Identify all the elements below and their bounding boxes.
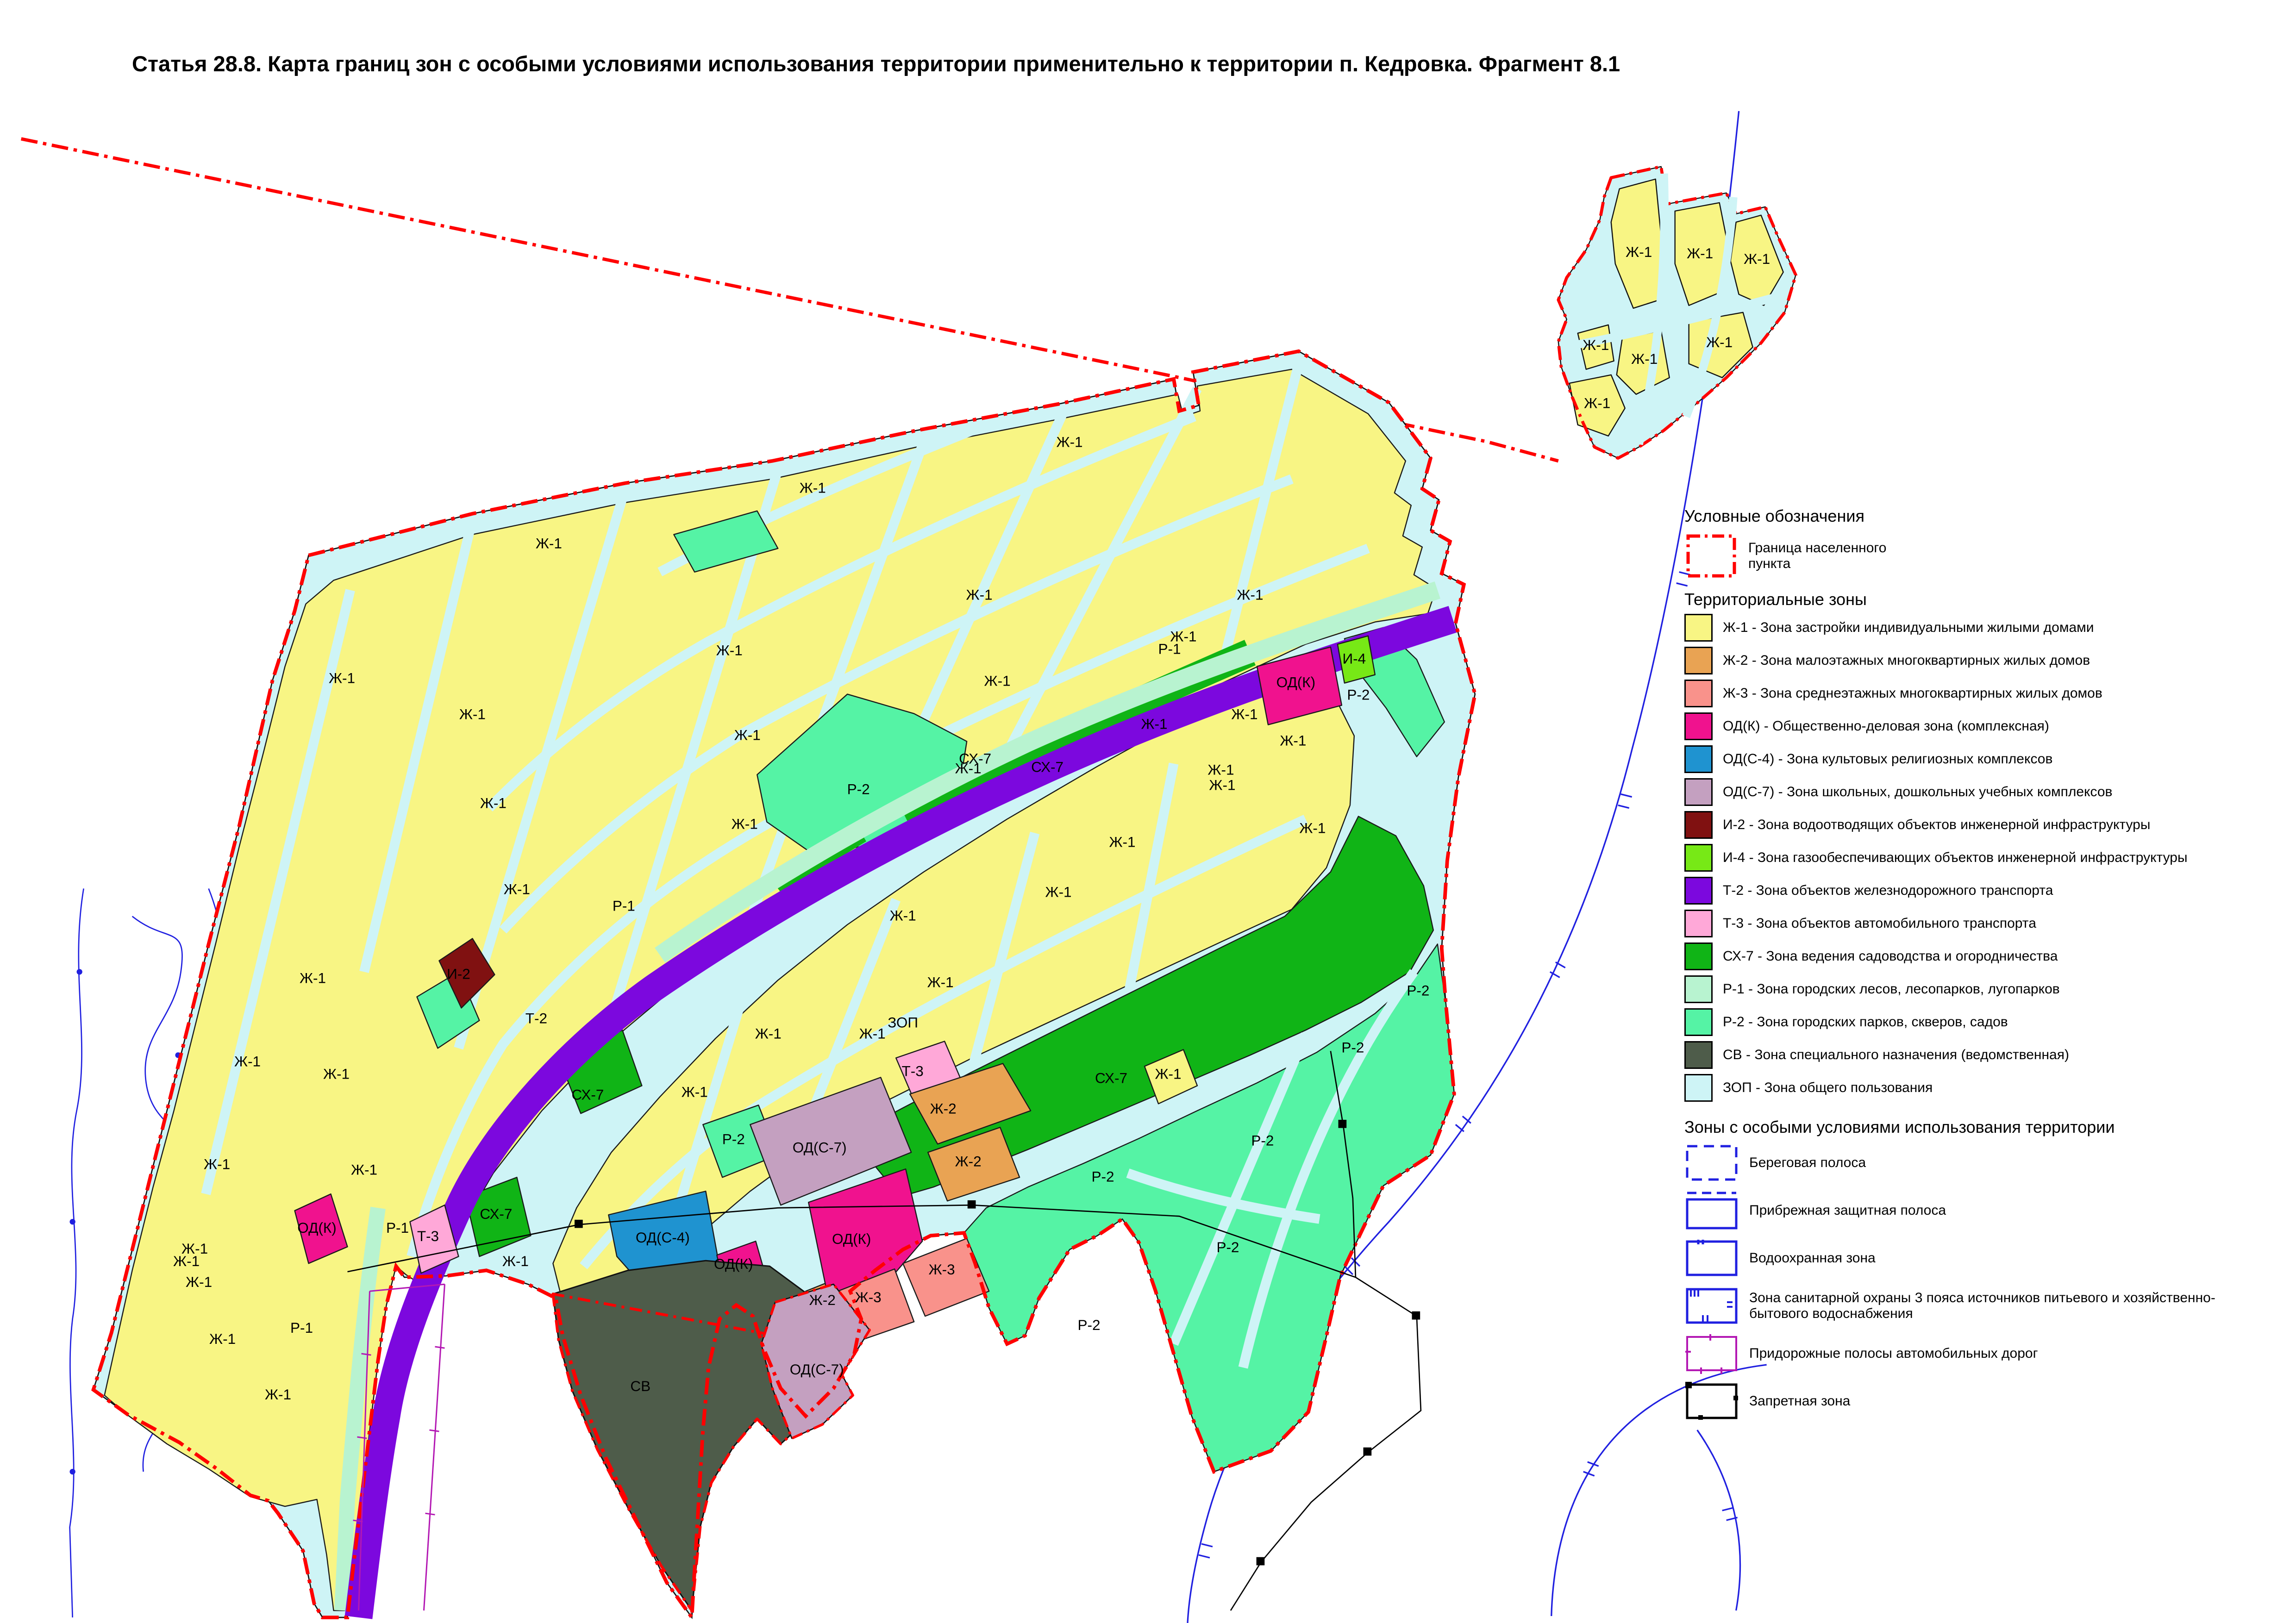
zone-label: Р-1 (613, 897, 635, 914)
legend-special-row: Запретная зона (1684, 1380, 2286, 1423)
legend-special-row: Зона санитарной охраны 3 пояса источнико… (1684, 1285, 2286, 1327)
legend-zone-row-r1: Р-1 - Зона городских лесов, лесопарков, … (1684, 975, 2286, 1003)
zone-label: Р-2 (1347, 687, 1370, 703)
legend-special-row: Придорожные полосы автомобильных дорог (1684, 1332, 2286, 1375)
legend-swatch-sx7 (1684, 943, 1713, 970)
legend-swatch-zh3 (1684, 680, 1713, 707)
zone-label: Ж-1 (984, 673, 1011, 689)
zone-label: Ж-1 (716, 642, 743, 659)
legend-zone-label: Т-2 - Зона объектов железнодорожного тра… (1723, 883, 2053, 899)
legend-boundary-label: Граница населенного пункта (1748, 540, 1886, 572)
zone-label: Ж-1 (1584, 395, 1610, 412)
zone-label: И-2 (447, 965, 470, 982)
zone-label: СХ-7 (480, 1205, 512, 1222)
zone-label: Ж-1 (1155, 1065, 1181, 1082)
legend-special-row: Водоохранная зона (1684, 1237, 2286, 1280)
legend-zone-label: Ж-1 - Зона застройки индивидуальными жил… (1723, 620, 2094, 636)
legend-zone-row-ods7: ОД(С-7) - Зона школьных, дошкольных учеб… (1684, 778, 2286, 806)
legend-zone-row-odk: ОД(К) - Общественно-деловая зона (компле… (1684, 712, 2286, 740)
zone-label: Ж-2 (955, 1153, 982, 1169)
legend-symbol-ticks-magenta (1684, 1332, 1739, 1375)
zone-label: Р-2 (1078, 1317, 1101, 1333)
legend-zone-label: ЗОП - Зона общего пользования (1723, 1080, 1933, 1096)
legend-special-label: Прибрежная защитная полоса (1749, 1203, 1946, 1219)
legend-zone-label: СХ-7 - Зона ведения садоводства и огород… (1723, 949, 2058, 965)
zone-label: Ж-1 (859, 1025, 886, 1042)
legend-zone-label: ОД(С-7) - Зона школьных, дошкольных учеб… (1723, 784, 2112, 800)
zone-label: Ж-1 (504, 880, 530, 897)
legend-symbol-solid-black (1684, 1380, 1739, 1423)
zone-label: Р-2 (847, 781, 870, 798)
zone-label: Р-2 (1341, 1039, 1364, 1055)
zone-label: Ж-1 (323, 1065, 350, 1082)
zone-label: Ж-2 (809, 1292, 836, 1308)
zone-label: Ж-1 (732, 815, 758, 832)
zone-label: ОД(К) (297, 1219, 336, 1236)
legend-zones-title: Территориальные зоны (1684, 590, 2286, 609)
legend-swatch-i2 (1684, 811, 1713, 839)
legend-swatch-i4 (1684, 844, 1713, 872)
zone-label: Ж-1 (682, 1083, 708, 1100)
zone-label: Ж-1 (1626, 243, 1652, 260)
legend-swatch-t2 (1684, 877, 1713, 905)
zone-label: Ж-1 (1706, 334, 1733, 350)
zone-label: ОД(С-7) (793, 1139, 847, 1155)
legend-zone-label: ОД(С-4) - Зона культовых религиозных ком… (1723, 751, 2052, 768)
legend-zone-label: Ж-2 - Зона малоэтажных многоквартирных ж… (1723, 653, 2090, 669)
legend-zone-label: Ж-3 - Зона среднеэтажных многоквартирных… (1723, 686, 2102, 702)
legend-zone-row-zh1: Ж-1 - Зона застройки индивидуальными жил… (1684, 614, 2286, 642)
zone-label: ОД(К) (832, 1230, 871, 1247)
legend-zone-row-zop: ЗОП - Зона общего пользования (1684, 1074, 2286, 1102)
zone-label: Р-2 (1407, 982, 1429, 999)
legend-boundary-item: Граница населенного пункта (1684, 531, 2286, 581)
legend-zone-row-t2: Т-2 - Зона объектов железнодорожного тра… (1684, 877, 2286, 905)
zone-label: И-4 (1343, 650, 1366, 667)
legend-special-label: Зона санитарной охраны 3 пояса источнико… (1749, 1290, 2235, 1322)
zone-label: Ж-1 (890, 907, 916, 924)
zone-label: СХ-7 (571, 1086, 604, 1103)
zone-label: Ж-1 (181, 1240, 208, 1257)
sv-zone (553, 1261, 870, 1611)
zone-label: Ж-1 (1207, 762, 1234, 778)
zone-label: СХ-7 (1095, 1069, 1127, 1086)
zone-label: Ж-1 (502, 1253, 529, 1269)
legend-zone-row-i2: И-2 - Зона водоотводящих объектов инжене… (1684, 811, 2286, 839)
zone-label: Ж-1 (459, 706, 486, 723)
legend-symbol-dashed-blue (1684, 1142, 1739, 1184)
zone-label: Ж-1 (1237, 587, 1263, 603)
zone-label: Ж-1 (1141, 716, 1167, 732)
legend-symbol-ticks-blue (1684, 1285, 1739, 1327)
legend-special-label: Береговая полоса (1749, 1155, 1866, 1171)
legend-special-label: Водоохранная зона (1749, 1250, 1876, 1267)
zone-label: Ж-1 (755, 1025, 782, 1042)
legend-special-label: Запретная зона (1749, 1393, 1850, 1410)
legend-swatch-zop (1684, 1074, 1713, 1102)
legend-zone-label: И-4 - Зона газообеспечивающих объектов и… (1723, 850, 2188, 866)
fragment-northeast (1558, 167, 1796, 458)
zoning-map-page: Статья 28.8. Карта границ зон с особыми … (0, 0, 2296, 1623)
legend-symbol-solid-blue (1684, 1237, 1739, 1280)
zone-label: Ж-1 (234, 1053, 261, 1069)
legend-swatch-t3 (1684, 910, 1713, 937)
zone-label: ОД(С-4) (636, 1229, 690, 1246)
zone-label: Ж-1 (1687, 245, 1713, 262)
legend-special-row: Прибрежная защитная полоса (1684, 1189, 2286, 1232)
zone-label: Р-2 (1216, 1239, 1239, 1255)
zone-label: Р-1 (290, 1319, 313, 1336)
legend-symbols-title: Условные обозначения (1684, 506, 2286, 526)
zone-label: Ж-1 (1280, 732, 1306, 749)
zone-label: Ж-1 (1299, 819, 1326, 836)
legend-swatch-r2 (1684, 1008, 1713, 1036)
legend-zone-label: И-2 - Зона водоотводящих объектов инжене… (1723, 817, 2150, 833)
zone-label: Ж-1 (1231, 706, 1257, 723)
zone-label: Р-2 (1092, 1168, 1114, 1185)
legend-zone-row-zh3: Ж-3 - Зона среднеэтажных многоквартирных… (1684, 680, 2286, 707)
legend-zone-row-i4: И-4 - Зона газообеспечивающих объектов и… (1684, 844, 2286, 872)
zone-label: Ж-1 (186, 1273, 212, 1290)
zone-label: Ж-1 (1209, 777, 1235, 793)
zone-label: ОД(К) (714, 1255, 753, 1272)
zone-label: Т-3 (902, 1062, 924, 1079)
zone-label: Ж-1 (800, 480, 826, 496)
zone-label: Ж-1 (1631, 350, 1658, 367)
zone-label: Ж-1 (1057, 434, 1083, 450)
zone-label: Ж-1 (1109, 833, 1135, 850)
zone-label: Ж-3 (929, 1261, 955, 1278)
zone-label: ОД(К) (1276, 674, 1315, 691)
legend-zone-rows: Ж-1 - Зона застройки индивидуальными жил… (1684, 614, 2286, 1102)
zone-label: Т-3 (417, 1228, 439, 1244)
zone-label: Р-1 (1158, 641, 1181, 657)
zone-label: СХ-7 (959, 750, 991, 767)
zone-label: Ж-2 (930, 1100, 957, 1117)
zone-label: СВ (630, 1378, 651, 1394)
legend-zone-label: Т-3 - Зона объектов автомобильного транс… (1723, 916, 2036, 932)
legend-swatch-r1 (1684, 975, 1713, 1003)
legend-zone-row-t3: Т-3 - Зона объектов автомобильного транс… (1684, 910, 2286, 937)
zone-label: Ж-1 (480, 795, 507, 811)
settlement-boundary-symbol (1684, 531, 1740, 581)
legend-swatch-odk (1684, 712, 1713, 740)
zone-label: Ж-1 (966, 587, 993, 603)
zone-label: Т-2 (526, 1010, 547, 1026)
zone-label: Ж-1 (1583, 337, 1609, 353)
legend-swatch-zh1 (1684, 614, 1713, 642)
legend-zone-row-r2: Р-2 - Зона городских парков, скверов, са… (1684, 1008, 2286, 1036)
zone-label: Ж-1 (927, 974, 954, 990)
legend-swatch-ods4 (1684, 745, 1713, 773)
zone-label: Ж-1 (329, 670, 355, 687)
zone-label: Ж-1 (209, 1330, 236, 1347)
legend-special-row: Береговая полоса (1684, 1142, 2286, 1184)
legend-swatch-sv (1684, 1041, 1713, 1069)
legend-zone-label: Р-2 - Зона городских парков, скверов, са… (1723, 1014, 2008, 1030)
legend-zone-row-sv: СВ - Зона специального назначения (ведом… (1684, 1041, 2286, 1069)
legend-zone-row-ods4: ОД(С-4) - Зона культовых религиозных ком… (1684, 745, 2286, 773)
legend-panel: Условные обозначения Граница населенного… (1684, 504, 2286, 1428)
legend-swatch-zh2 (1684, 647, 1713, 674)
zone-label: СХ-7 (1031, 759, 1064, 775)
zone-label: Ж-1 (300, 969, 326, 986)
legend-zone-row-sx7: СХ-7 - Зона ведения садоводства и огород… (1684, 943, 2286, 970)
zone-label: Ж-1 (536, 535, 562, 552)
zone-label: Ж-1 (734, 727, 761, 743)
zone-label: Р-2 (722, 1130, 745, 1147)
zone-label: Р-2 (1251, 1132, 1274, 1149)
zone-label: Ж-1 (1045, 883, 1072, 900)
zone-label: Ж-1 (1744, 250, 1770, 267)
zone-label: ОД(С-7) (790, 1361, 844, 1378)
zone-label: Ж-3 (855, 1289, 882, 1305)
legend-special-label: Придорожные полосы автомобильных дорог (1749, 1346, 2038, 1362)
zone-label: Ж-1 (204, 1155, 230, 1172)
zone-label: ЗОП (888, 1014, 918, 1030)
legend-zone-label: ОД(К) - Общественно-деловая зона (компле… (1723, 718, 2049, 735)
zone-label: Ж-1 (265, 1386, 291, 1403)
zone-label: Ж-1 (351, 1161, 377, 1178)
legend-zone-label: СВ - Зона специального назначения (ведом… (1723, 1047, 2069, 1063)
legend-special-title: Зоны с особыми условиями использования т… (1684, 1117, 2286, 1137)
zone-label: Р-1 (386, 1219, 409, 1236)
legend-special-rows: Береговая полоса Прибрежная защитная пол… (1684, 1142, 2286, 1423)
legend-swatch-ods7 (1684, 778, 1713, 806)
legend-zone-row-zh2: Ж-2 - Зона малоэтажных многоквартирных ж… (1684, 647, 2286, 674)
legend-symbol-solid-blue-dashtop (1684, 1189, 1739, 1232)
legend-zone-label: Р-1 - Зона городских лесов, лесопарков, … (1723, 981, 2060, 998)
